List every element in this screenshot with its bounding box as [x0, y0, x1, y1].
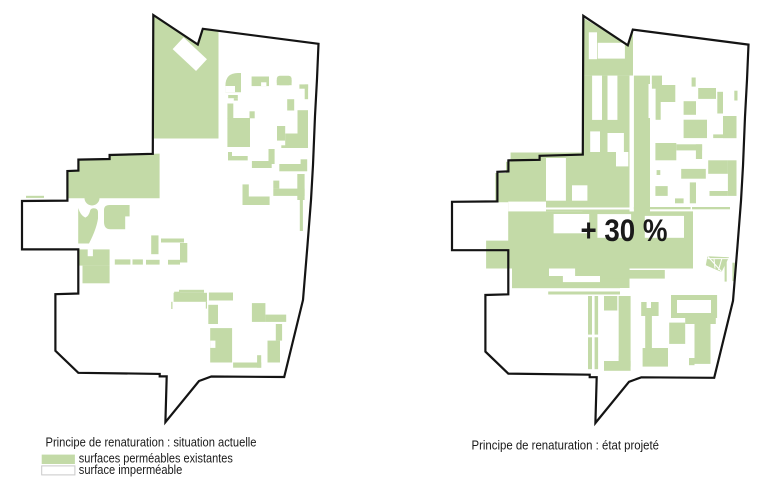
svg-text:Principe de renaturation : sit: Principe de renaturation : situation act… — [46, 435, 257, 450]
svg-text:Principe de renaturation : éta: Principe de renaturation : état projeté — [472, 438, 660, 453]
svg-text:surface imperméable: surface imperméable — [79, 462, 183, 477]
svg-text:+ 30 %: + 30 % — [581, 212, 668, 248]
